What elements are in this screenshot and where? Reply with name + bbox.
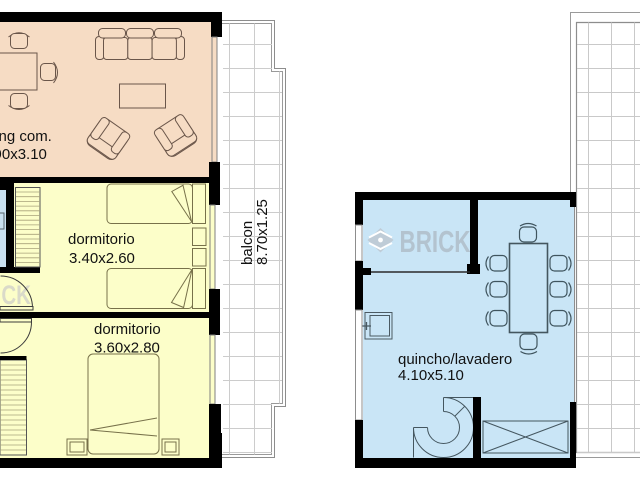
svg-text:3.40x2.60: 3.40x2.60 xyxy=(69,250,135,267)
svg-text:BRICK: BRICK xyxy=(400,224,471,259)
svg-text:BRICK: BRICK xyxy=(0,280,31,310)
svg-text:4.10x5.10: 4.10x5.10 xyxy=(398,367,464,384)
svg-text:living com.: living com. xyxy=(0,128,52,145)
svg-text:quincho/lavadero: quincho/lavadero xyxy=(398,351,512,368)
svg-text:dormitorio: dormitorio xyxy=(94,321,161,338)
svg-text:dormitorio: dormitorio xyxy=(68,231,135,248)
svg-text:8.70x1.25: 8.70x1.25 xyxy=(254,199,271,265)
svg-text:3.90x3.10: 3.90x3.10 xyxy=(0,146,47,163)
